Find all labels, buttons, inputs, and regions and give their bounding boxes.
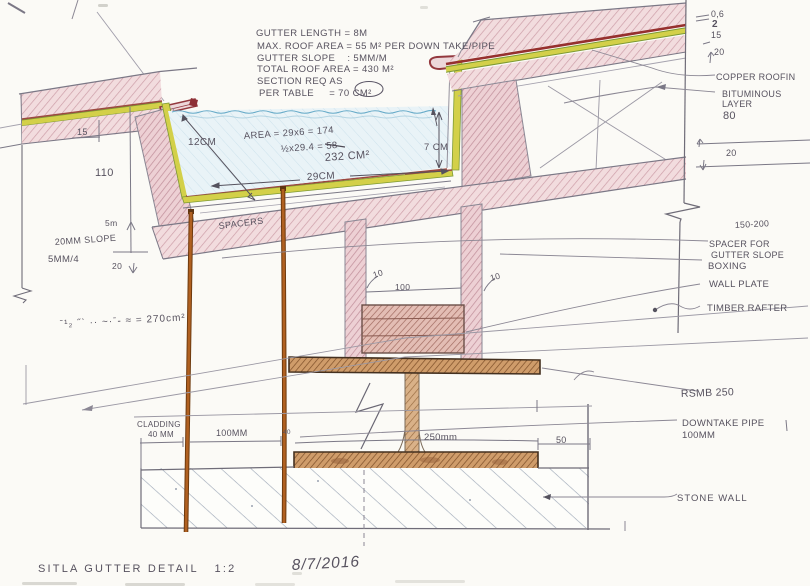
svg-text:20: 20 xyxy=(726,148,737,158)
svg-text:100: 100 xyxy=(395,282,410,292)
svg-text:29CM: 29CM xyxy=(307,171,336,183)
svg-text:GUTTER LENGTH = 8M: GUTTER LENGTH = 8M xyxy=(256,28,367,39)
svg-text:BOXING: BOXING xyxy=(708,261,747,272)
svg-text:15: 15 xyxy=(77,127,88,137)
svg-text:20: 20 xyxy=(714,47,724,57)
svg-text:5MM/4: 5MM/4 xyxy=(48,254,79,265)
svg-text:80: 80 xyxy=(723,110,736,122)
svg-text:GUTTER SLOPE: GUTTER SLOPE xyxy=(711,250,784,260)
svg-text:GUTTER SLOPE : 5MM/M: GUTTER SLOPE : 5MM/M xyxy=(257,53,387,64)
svg-text:RSMB 250: RSMB 250 xyxy=(681,386,735,400)
svg-text:SECTION REQ AS: SECTION REQ AS xyxy=(257,76,343,87)
svg-text:50: 50 xyxy=(556,435,567,445)
svg-text:100MM: 100MM xyxy=(682,430,715,441)
svg-text:100MM: 100MM xyxy=(216,428,248,438)
svg-text:150-200: 150-200 xyxy=(735,218,770,230)
svg-text:5m: 5m xyxy=(105,218,118,228)
svg-text:WALL PLATE: WALL PLATE xyxy=(709,279,769,290)
svg-text:SITLA GUTTER DETAIL 1:2: SITLA GUTTER DETAIL 1:2 xyxy=(38,563,236,575)
svg-text:20: 20 xyxy=(112,261,122,271)
svg-text:40 MM: 40 MM xyxy=(148,430,174,439)
svg-text:8/7/2016: 8/7/2016 xyxy=(291,553,360,574)
svg-text:2: 2 xyxy=(712,19,718,30)
svg-text:CLADDING: CLADDING xyxy=(137,420,181,429)
svg-text:110: 110 xyxy=(95,167,114,179)
svg-text:LAYER: LAYER xyxy=(722,99,753,109)
svg-text:DOWNTAKE PIPE: DOWNTAKE PIPE xyxy=(682,418,764,429)
svg-text:TIMBER RAFTER: TIMBER RAFTER xyxy=(707,303,787,314)
svg-text:7 CM: 7 CM xyxy=(424,142,448,153)
svg-text:COPPER ROOFIN: COPPER ROOFIN xyxy=(716,72,795,82)
svg-text:MAX. ROOF AREA = 55 M² PER DO: MAX. ROOF AREA = 55 M² PER DOWN TAKE/PIP… xyxy=(257,41,495,52)
svg-text:SPACER FOR: SPACER FOR xyxy=(709,239,770,249)
svg-text:0,6: 0,6 xyxy=(711,9,724,19)
svg-text:40: 40 xyxy=(283,429,291,436)
svg-text:12CM: 12CM xyxy=(188,137,216,148)
svg-text:250mm: 250mm xyxy=(424,432,457,443)
svg-text:STONE WALL: STONE WALL xyxy=(677,493,748,504)
svg-text:TOTAL ROOF AREA = 430 M²: TOTAL ROOF AREA = 430 M² xyxy=(257,64,394,75)
svg-text:BITUMINOUS: BITUMINOUS xyxy=(722,89,782,99)
svg-text:15: 15 xyxy=(711,30,721,40)
